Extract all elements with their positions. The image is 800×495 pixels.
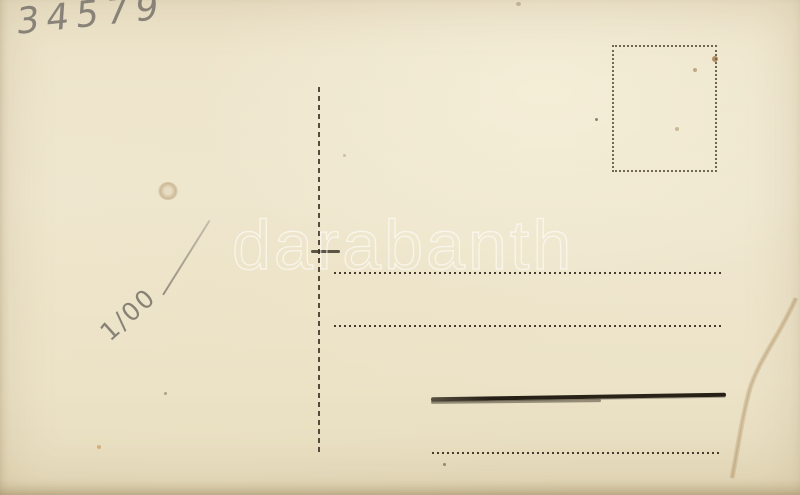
stamp-box	[612, 45, 717, 172]
foxing-speck	[443, 463, 446, 466]
address-area	[330, 200, 730, 480]
foxing-speck	[164, 392, 167, 395]
postcard-back: 34579 darabanth 1/00	[0, 0, 800, 495]
foxing-speck	[516, 2, 521, 6]
foxing-speck	[712, 56, 718, 62]
address-line-1	[334, 272, 723, 274]
address-line-3	[432, 452, 722, 454]
foxing-speck	[693, 68, 697, 72]
address-line-2	[334, 325, 722, 327]
foxing-speck	[97, 445, 101, 449]
foxing-speck	[343, 154, 346, 157]
message-area	[0, 60, 310, 480]
foxing-speck	[675, 127, 679, 131]
message-divider-line	[318, 87, 320, 455]
catalog-number-handwriting: 34579	[15, 0, 167, 43]
stain-spot	[158, 182, 178, 200]
foxing-speck	[595, 118, 598, 121]
